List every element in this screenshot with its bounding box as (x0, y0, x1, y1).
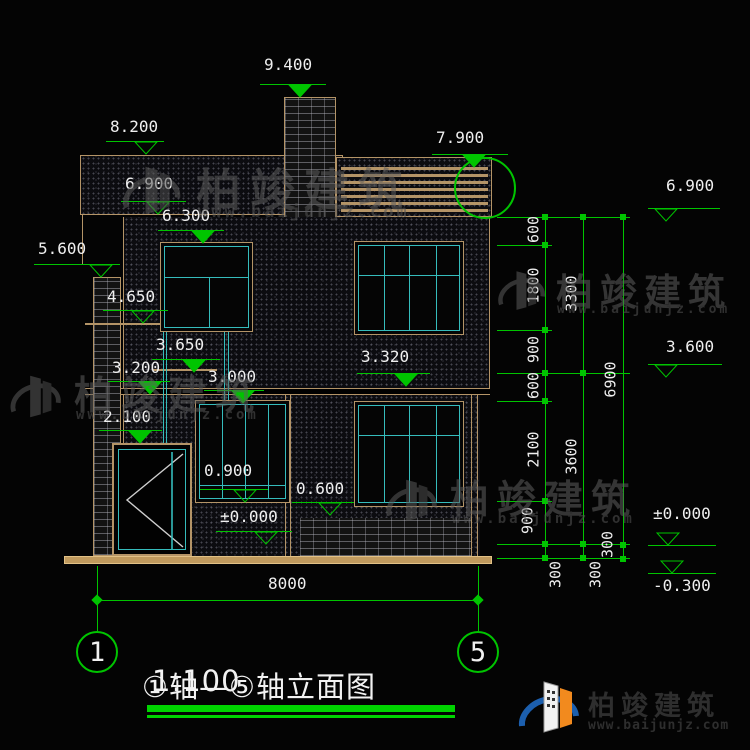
level-label: 0.900 (204, 463, 252, 479)
dim-tick (620, 214, 626, 220)
level-label: -0.300 (653, 578, 711, 594)
chain-dim-label: 300 (601, 515, 616, 575)
level-marker-icon (660, 560, 684, 574)
axis-bubble-1: 1 (76, 631, 118, 673)
dim-tick (542, 541, 548, 547)
level-label: 3.000 (208, 369, 256, 385)
dim-line (478, 566, 479, 631)
level-marker-icon (462, 154, 486, 168)
level-label: 7.900 (436, 130, 484, 146)
level-marker-icon (138, 381, 162, 395)
dim-tick (580, 370, 586, 376)
chain-dim-label: 6900 (604, 350, 619, 410)
level-label: 4.650 (107, 289, 155, 305)
level-label: ±0.000 (653, 506, 711, 522)
level-marker-icon (131, 310, 155, 324)
chain-dim-label: 2100 (527, 420, 542, 480)
dim-line (497, 217, 630, 218)
level-marker-icon (134, 141, 158, 155)
level-marker-icon (89, 264, 113, 278)
level-label: 6.300 (162, 208, 210, 224)
level-marker-icon (128, 430, 152, 444)
company-logo-url: www.baijunjz.com (588, 718, 729, 733)
chain-dim-label: 600 (527, 200, 542, 260)
drawing-title-text: ①轴—⑤轴立面图 (142, 664, 376, 706)
level-marker-icon (288, 84, 312, 98)
level-marker-icon (318, 502, 342, 516)
dim-line (545, 217, 546, 558)
chain-dim-label: 900 (521, 491, 536, 551)
level-marker-icon (654, 208, 678, 222)
title-underline-thick (147, 705, 455, 712)
dim-tick (542, 214, 548, 220)
level-label: ±0.000 (220, 509, 278, 525)
dim-line (97, 600, 478, 601)
axis-number: 5 (470, 637, 486, 668)
level-marker-icon (654, 364, 678, 378)
level-label: 3.200 (112, 360, 160, 376)
level-marker-icon (254, 531, 278, 545)
dim-tick (542, 242, 548, 248)
company-logo-icon (514, 674, 584, 744)
dim-tick (580, 541, 586, 547)
dim-line (583, 217, 584, 558)
dim-tick (542, 327, 548, 333)
level-marker-icon (394, 373, 418, 387)
level-label: 8.200 (110, 119, 158, 135)
level-label: 2.100 (103, 409, 151, 425)
level-label: 6.900 (125, 176, 173, 192)
elevation-drawing: 9.4008.2006.9006.3007.9005.6004.6503.650… (0, 0, 750, 750)
dim-tick (580, 214, 586, 220)
total-width-dim: 8000 (268, 576, 307, 592)
level-label: 0.600 (296, 481, 344, 497)
chain-dim-label: 1800 (527, 256, 542, 316)
dim-tick (542, 498, 548, 504)
dim-tick (620, 556, 626, 562)
level-label: 5.600 (38, 241, 86, 257)
dim-tick (580, 555, 586, 561)
dim-tick (542, 370, 548, 376)
level-label: 3.600 (666, 339, 714, 355)
drawing-title: ①轴—⑤轴立面图 1:100 (142, 664, 241, 698)
level-label: 3.320 (361, 349, 409, 365)
axis-number: 1 (89, 637, 105, 668)
level-marker-icon (191, 230, 215, 244)
chain-dim-label: 3600 (565, 427, 580, 487)
chain-dim-label: 600 (527, 356, 542, 416)
level-marker-icon (656, 532, 680, 546)
level-marker-icon (231, 390, 255, 404)
level-label: 3.650 (156, 337, 204, 353)
chain-dim-label: 300 (549, 545, 564, 605)
level-marker-icon (233, 489, 257, 503)
chain-dim-label: 3300 (565, 264, 580, 324)
level-label: 9.400 (264, 57, 312, 73)
dim-line (623, 217, 624, 559)
company-logo: 柏竣建筑 www.baijunjz.com (514, 672, 746, 746)
dim-line (97, 566, 98, 631)
level-marker-icon (182, 359, 206, 373)
level-label: 6.900 (666, 178, 714, 194)
axis-bubble-5: 5 (457, 631, 499, 673)
dim-tick (620, 542, 626, 548)
title-underline-thin (147, 715, 455, 718)
dim-tick (542, 398, 548, 404)
